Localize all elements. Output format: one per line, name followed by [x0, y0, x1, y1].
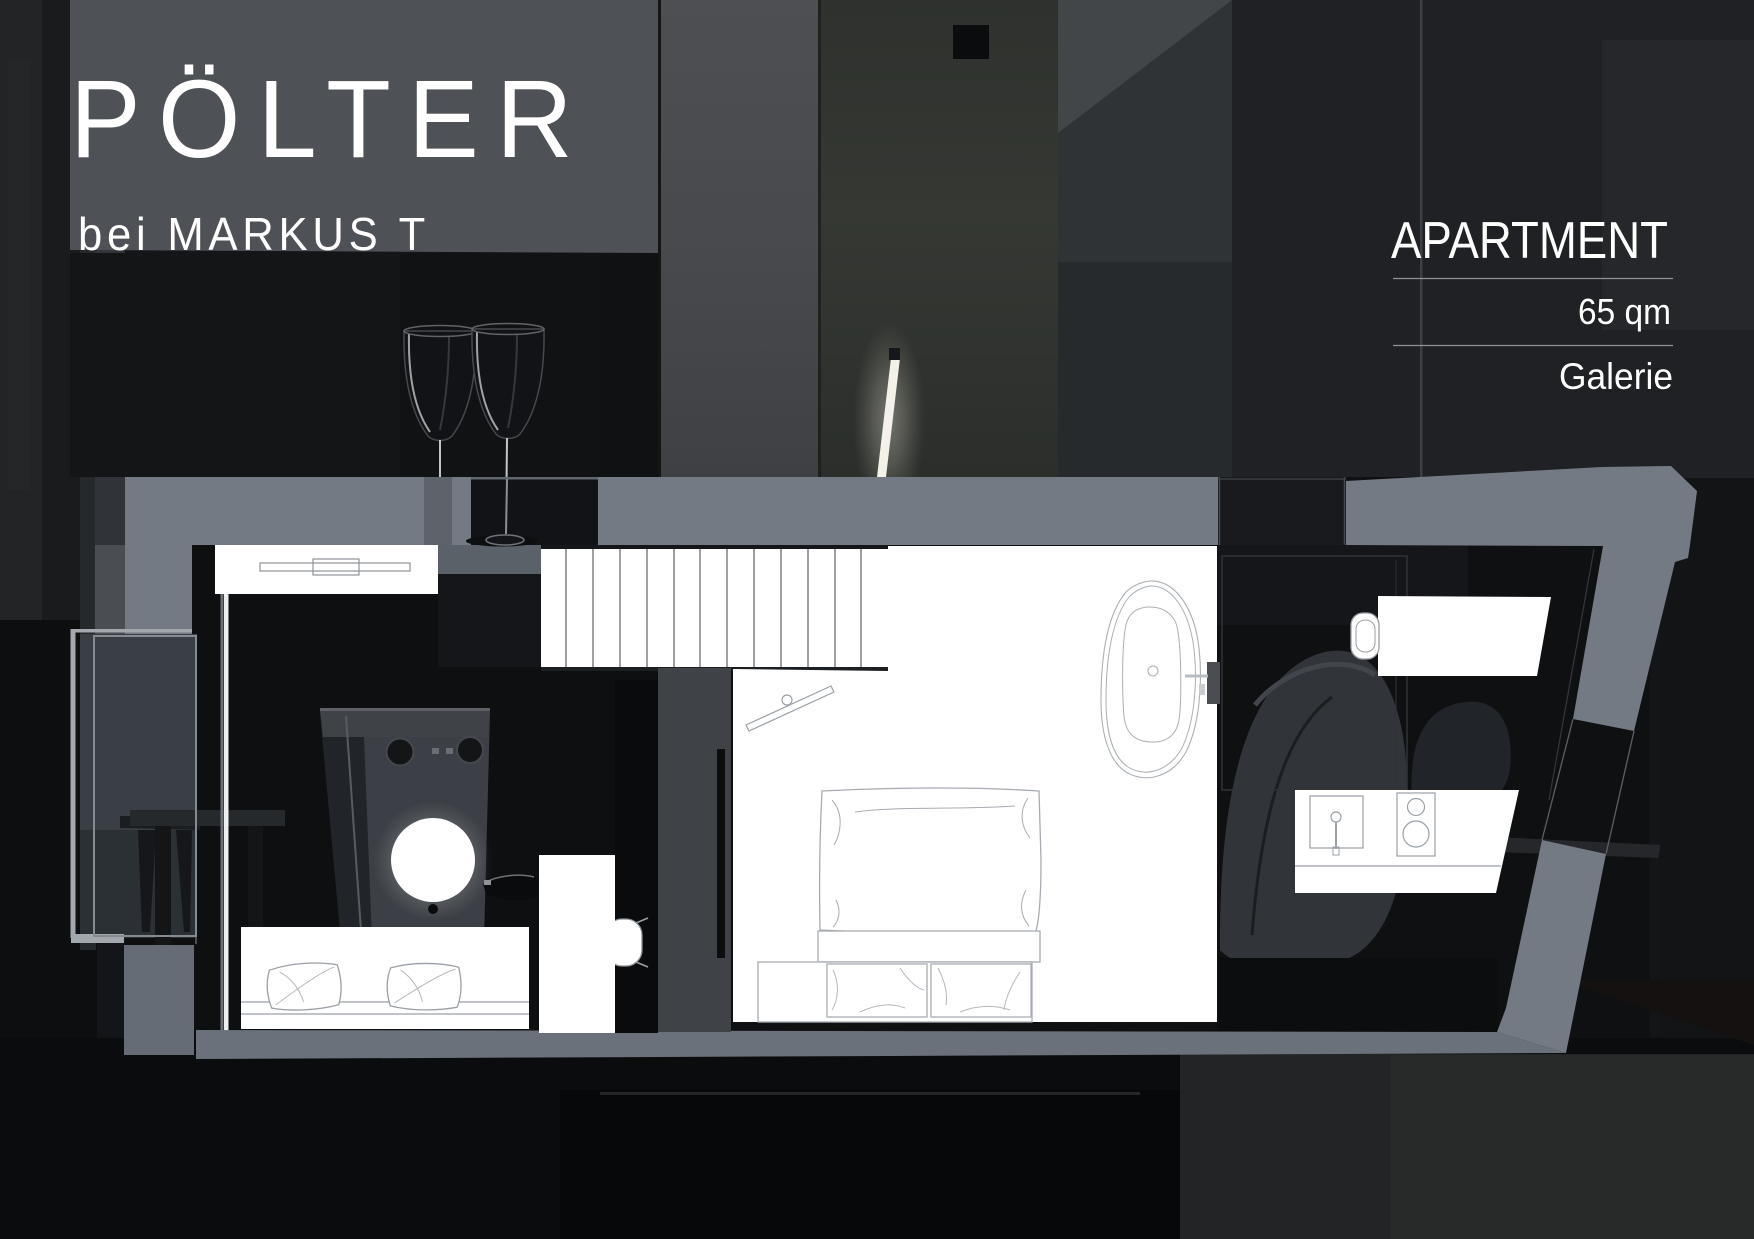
svg-text:APARTMENT: APARTMENT [1391, 212, 1668, 270]
svg-text:bei MARKUS T: bei MARKUS T [78, 208, 430, 260]
svg-text:Galerie: Galerie [1559, 356, 1673, 397]
svg-text:65 qm: 65 qm [1578, 291, 1671, 332]
svg-text:PÖLTER: PÖLTER [70, 58, 590, 181]
